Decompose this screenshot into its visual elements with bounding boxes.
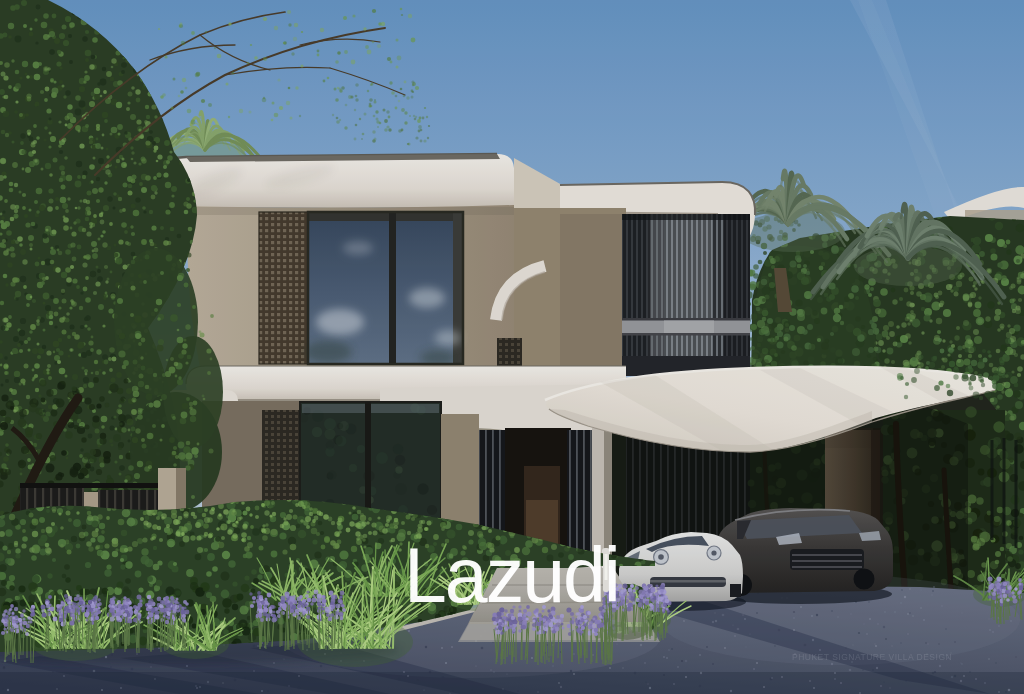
svg-text:Lazudi: Lazudi bbox=[404, 532, 619, 618]
svg-text:PHUKET SIGNATURE VILLA DESIGN: PHUKET SIGNATURE VILLA DESIGN bbox=[792, 652, 952, 662]
